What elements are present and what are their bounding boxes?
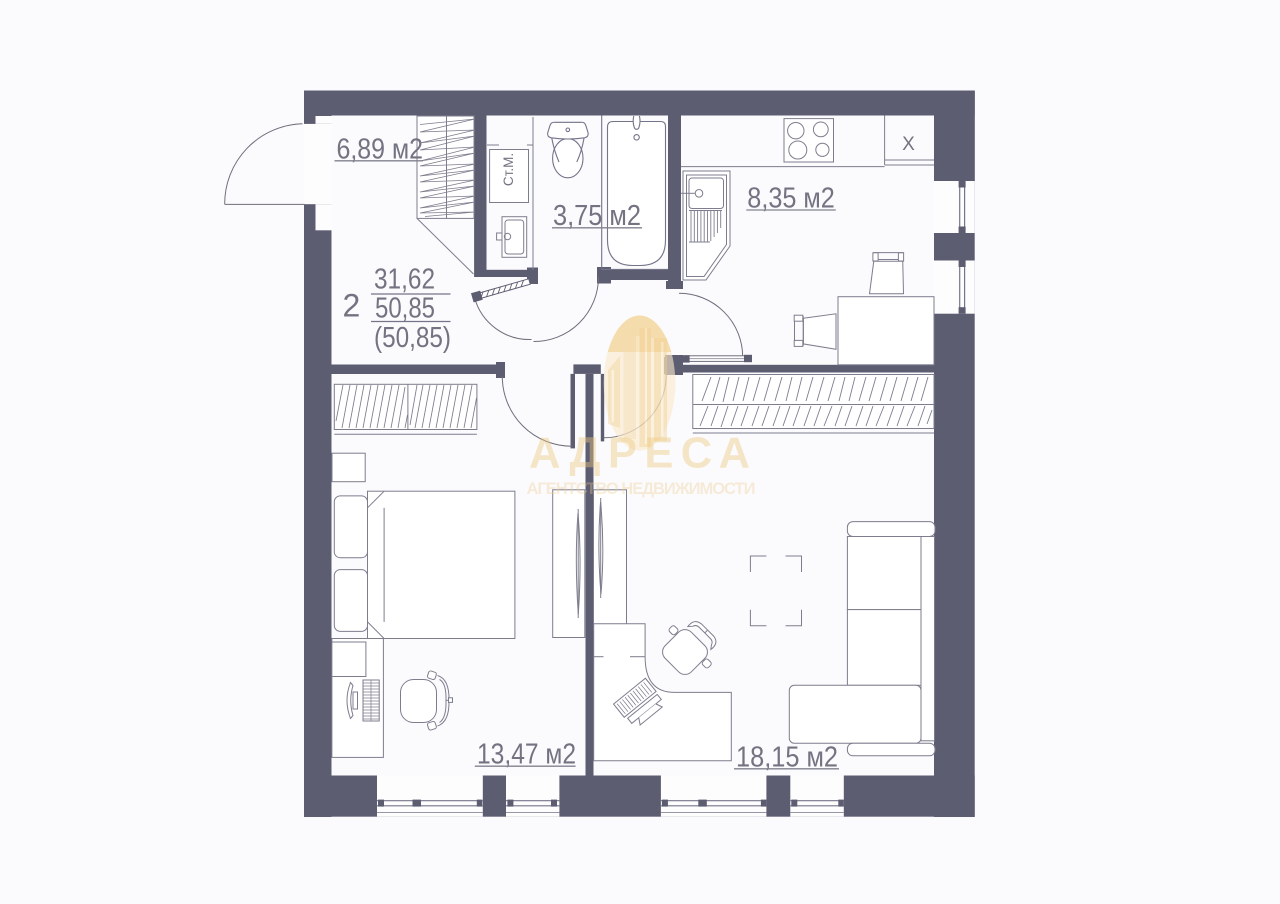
svg-text:31,62: 31,62	[374, 264, 435, 296]
svg-text:Ст.М.: Ст.М.	[501, 153, 516, 186]
svg-text:13,47 м2: 13,47 м2	[477, 738, 576, 770]
svg-text:2: 2	[343, 288, 361, 324]
svg-text:50,85: 50,85	[375, 293, 435, 325]
svg-text:(50,85): (50,85)	[374, 322, 451, 354]
svg-text:АГЕНТСТВО НЕДВИЖИМОСТИ: АГЕНТСТВО НЕДВИЖИМОСТИ	[527, 480, 756, 498]
svg-text:X: X	[902, 134, 915, 155]
